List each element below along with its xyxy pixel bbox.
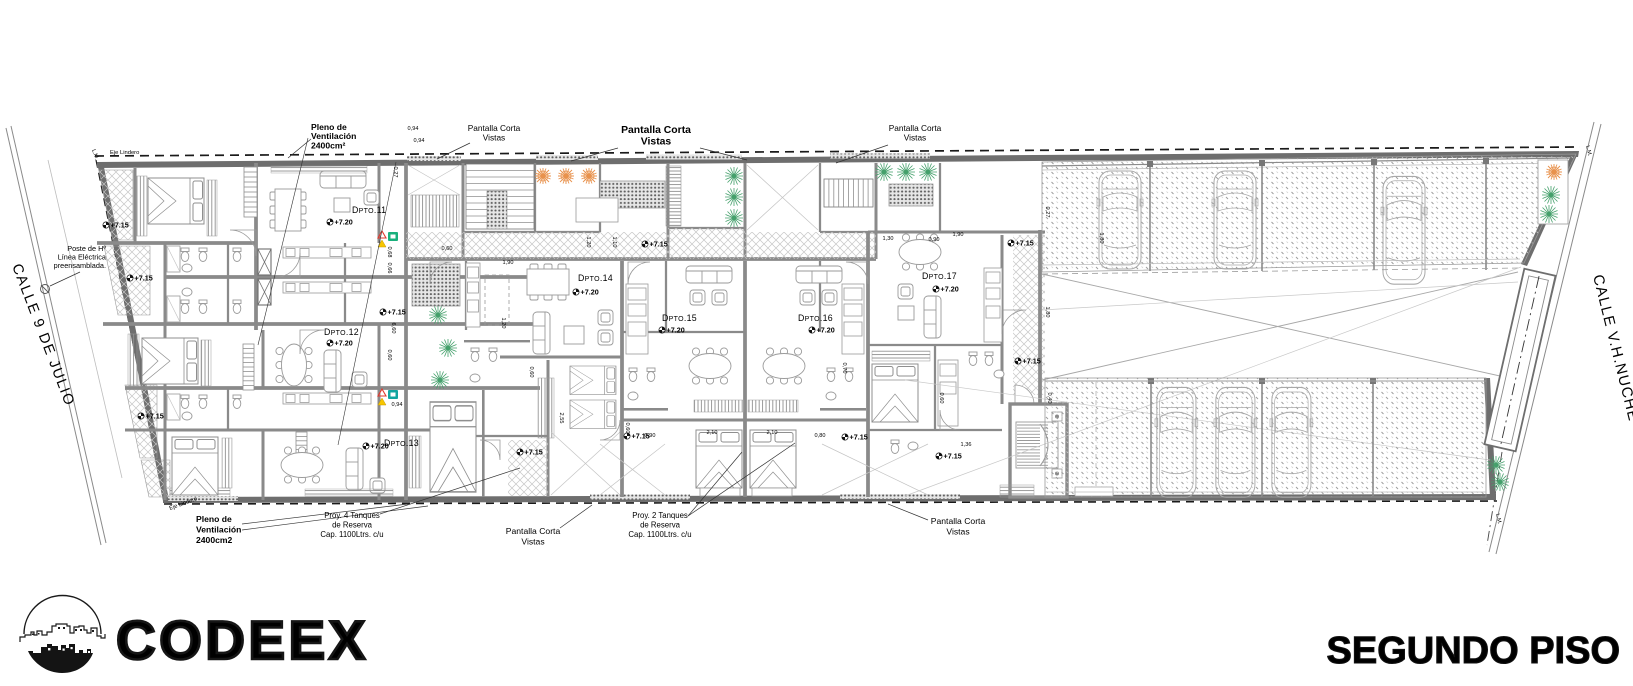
svg-text:DPTO.13: DPTO.13 (384, 438, 419, 448)
svg-text:SEGUNDO PISO: SEGUNDO PISO (1327, 630, 1621, 672)
svg-text:DPTO.11: DPTO.11 (352, 205, 386, 215)
svg-text:+7.15: +7.15 (1016, 239, 1034, 248)
svg-text:1,20: 1,20 (585, 237, 591, 248)
svg-text:0,66: 0,66 (386, 263, 392, 274)
svg-text:Pantalla CortaVistas: Pantalla CortaVistas (931, 516, 986, 536)
svg-text:+7.20: +7.20 (941, 285, 959, 294)
svg-text:+7.15: +7.15 (632, 432, 650, 441)
svg-text:1,20: 1,20 (500, 318, 506, 329)
svg-text:0,27: 0,27 (1044, 207, 1050, 218)
svg-text:1,90: 1,90 (503, 260, 514, 266)
svg-text:Pantalla CortaVistas: Pantalla CortaVistas (621, 125, 691, 148)
svg-text:+7.15: +7.15 (944, 452, 962, 461)
svg-text:0,90: 0,90 (929, 237, 940, 243)
svg-text:1,10: 1,10 (611, 237, 617, 248)
svg-text:0,60: 0,60 (386, 350, 392, 361)
svg-text:0,60: 0,60 (938, 393, 944, 404)
svg-text:0,68: 0,68 (386, 247, 392, 258)
svg-text:+7.20: +7.20 (335, 218, 353, 227)
svg-text:CALLE 9 DE JULIO: CALLE 9 DE JULIO (8, 262, 77, 409)
svg-text:Eje Lindero: Eje Lindero (110, 150, 139, 156)
svg-text:Poste de HºLínea Eléctricapree: Poste de HºLínea Eléctricapreensamblada. (54, 244, 107, 270)
svg-text:0,70: 0,70 (841, 363, 847, 374)
svg-text:2,10: 2,10 (707, 430, 718, 436)
svg-text:DPTO.12: DPTO.12 (324, 327, 359, 337)
svg-text:Pantalla CortaVistas: Pantalla CortaVistas (468, 123, 521, 143)
svg-text:+7.15: +7.15 (850, 433, 868, 442)
svg-text:CALLE V.H.NUCHE: CALLE V.H.NUCHE (1589, 273, 1633, 423)
svg-text:Pleno deVentilación2400cm²: Pleno deVentilación2400cm² (311, 122, 356, 150)
svg-text:Proy. 2 Tanquesde ReservaCap.: Proy. 2 Tanquesde ReservaCap. 1100Ltrs. … (628, 511, 691, 539)
svg-text:1,36: 1,36 (961, 442, 972, 448)
svg-text:Proy. 4 Tanquesde ReservaCap.: Proy. 4 Tanquesde ReservaCap. 1100Ltrs. … (320, 511, 383, 539)
svg-text:CODEEX: CODEEX (116, 609, 369, 671)
svg-text:DPTO.17: DPTO.17 (922, 271, 957, 281)
svg-text:+7.15: +7.15 (146, 412, 164, 421)
svg-text:Pleno deVentilación2400cm2: Pleno deVentilación2400cm2 (196, 514, 241, 545)
svg-text:+7.15: +7.15 (135, 274, 153, 283)
svg-text:1,90: 1,90 (953, 232, 964, 238)
svg-text:L.M.: L.M. (1494, 513, 1502, 525)
svg-text:0,60: 0,60 (528, 367, 534, 378)
svg-text:+7.15: +7.15 (1023, 357, 1041, 366)
svg-text:+7.15: +7.15 (525, 448, 543, 457)
svg-text:0,94: 0,94 (408, 126, 419, 132)
svg-text:1,80: 1,80 (1098, 233, 1104, 244)
svg-text:Pantalla CortaVistas: Pantalla CortaVistas (889, 123, 942, 143)
svg-text:DPTO.14: DPTO.14 (578, 273, 613, 283)
svg-text:+7.20: +7.20 (581, 288, 599, 297)
svg-text:0,80: 0,80 (815, 433, 826, 439)
svg-text:1,30: 1,30 (883, 236, 894, 242)
svg-text:0,40: 0,40 (1046, 393, 1052, 404)
svg-text:0,60: 0,60 (442, 246, 453, 252)
svg-text:1,80: 1,80 (1044, 307, 1050, 318)
svg-text:6,60: 6,60 (390, 323, 396, 334)
svg-text:0,60: 0,60 (624, 423, 630, 434)
svg-text:+7.15: +7.15 (111, 221, 129, 230)
svg-text:2,55: 2,55 (558, 413, 564, 424)
svg-text:+7.20: +7.20 (667, 326, 685, 335)
svg-text:+7.20: +7.20 (335, 339, 353, 348)
svg-text:+7.15: +7.15 (650, 240, 668, 249)
svg-text:+7.20: +7.20 (817, 326, 835, 335)
svg-text:Pantalla CortaVistas: Pantalla CortaVistas (506, 526, 561, 546)
svg-text:+7.15: +7.15 (388, 308, 406, 317)
svg-text:L.M.: L.M. (90, 149, 99, 162)
svg-text:0,94: 0,94 (414, 138, 425, 144)
svg-text:DPTO.16: DPTO.16 (798, 313, 833, 323)
svg-text:DPTO.15: DPTO.15 (662, 313, 697, 323)
svg-text:0,94: 0,94 (392, 402, 403, 408)
svg-text:2,10: 2,10 (767, 430, 778, 436)
